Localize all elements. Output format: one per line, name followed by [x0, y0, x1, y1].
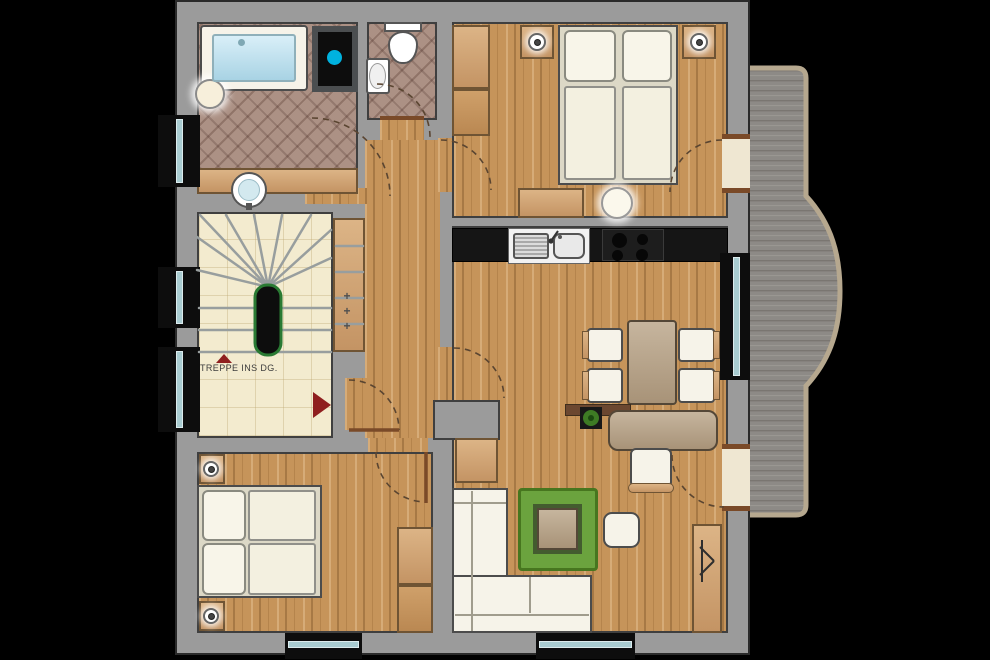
burner-icon [612, 250, 623, 261]
mattress [622, 86, 672, 180]
washbasin-bowl [238, 179, 260, 201]
step-plus-mark: + [340, 305, 354, 317]
desk [608, 410, 718, 451]
dresser [518, 188, 584, 218]
dining-table [627, 320, 677, 405]
window-glass [288, 641, 359, 648]
side-table [603, 512, 640, 548]
dining-chair [587, 368, 623, 403]
door-threshold [722, 444, 750, 449]
dining-chair [678, 368, 715, 403]
lamp-icon [203, 461, 219, 477]
pouf [601, 187, 633, 219]
pillow [564, 30, 616, 82]
sofa-corner [455, 578, 505, 630]
balcony-deck [750, 68, 840, 515]
chair-back [713, 371, 720, 400]
dining-chair [678, 328, 715, 362]
dining-chair [587, 328, 623, 362]
shaft-marker-dot [327, 50, 342, 65]
desk-chair [630, 448, 672, 488]
sofa-seam [471, 491, 473, 631]
burner-icon [637, 234, 648, 245]
pillow [202, 543, 246, 595]
window-glass [733, 257, 740, 376]
washbasin-tap-icon [246, 203, 252, 210]
kitchen-counter [452, 228, 728, 262]
mattress [248, 543, 316, 595]
balcony-door-top-opening [722, 139, 750, 188]
sofa-seam [455, 614, 589, 616]
mattress [248, 490, 316, 541]
hallway-living-wall [433, 400, 500, 440]
sink-basin [553, 233, 585, 259]
floor-plan: TREPPE INS DG. + + + [0, 0, 990, 660]
stair-label: TREPPE INS DG. [200, 363, 278, 373]
mattress [564, 86, 616, 180]
window-glass [176, 119, 183, 183]
wardrobe-top-block-1 [452, 25, 490, 89]
bathtub-drain [238, 39, 245, 46]
balcony-door-bottom-opening [722, 449, 750, 506]
hallway-floor [365, 140, 440, 438]
stair-door-opening [345, 378, 367, 430]
coffee-table [537, 508, 578, 550]
door-threshold [380, 116, 424, 120]
window-glass [539, 641, 632, 648]
chair-back [582, 371, 589, 400]
chair-back [582, 331, 589, 359]
desk-chair-back [628, 483, 674, 493]
sofa-seam [454, 502, 506, 504]
balcony-railing [750, 68, 840, 515]
window-glass [176, 351, 183, 428]
door-threshold [722, 134, 750, 139]
sink-drainer [513, 233, 549, 259]
bathtub-basin [212, 34, 296, 82]
wardrobe-bottom-block-2 [397, 585, 433, 633]
plant-center [588, 415, 594, 421]
wc-washbasin-bowl [369, 63, 386, 89]
lamp-icon [690, 33, 708, 51]
door-threshold [722, 188, 750, 193]
burner-icon [612, 233, 627, 248]
sofa-seam [529, 577, 531, 613]
stair-door-arrow-icon [313, 392, 331, 418]
chair-back [713, 331, 720, 359]
step-plus-mark: + [340, 320, 354, 332]
burner-icon [636, 249, 648, 261]
pillow [202, 490, 246, 541]
tv-lowboard [692, 524, 722, 633]
wardrobe-bottom-block-1 [397, 527, 433, 585]
stair-direction-arrow-icon [216, 354, 232, 363]
window-glass [176, 271, 183, 324]
pillow [622, 30, 672, 82]
vanity-counter [197, 168, 358, 194]
living-cabinet [455, 438, 498, 483]
bathroom-stool [195, 79, 225, 109]
door-threshold [722, 506, 750, 511]
lamp-icon [203, 608, 219, 624]
lamp-icon [528, 33, 546, 51]
step-plus-mark: + [340, 290, 354, 302]
wardrobe-top-block-2 [452, 89, 490, 136]
